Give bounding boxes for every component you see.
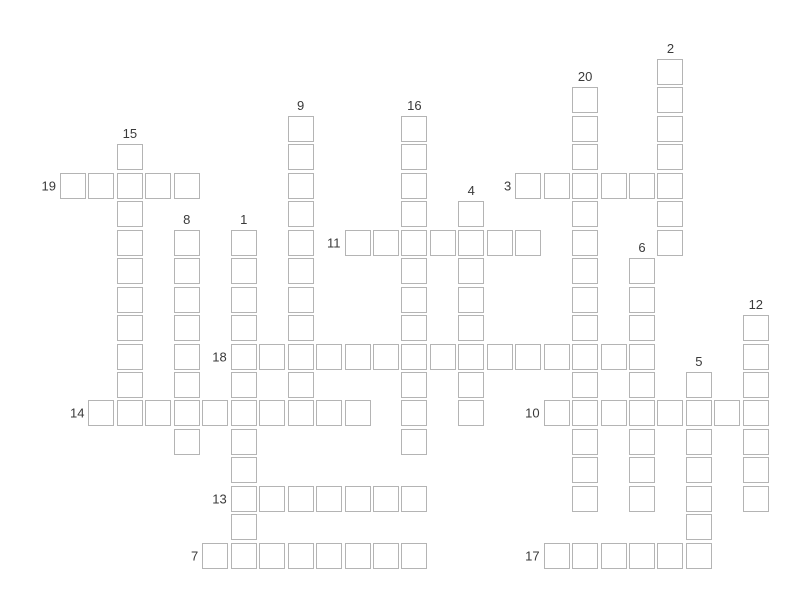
clue-number-14-across: 14 [70, 407, 84, 420]
crossword-cell[interactable] [117, 372, 143, 398]
crossword-cell[interactable] [345, 344, 371, 370]
crossword-cell[interactable] [572, 457, 598, 483]
crossword-cell[interactable] [458, 315, 484, 341]
clue-number-18-across: 18 [212, 350, 226, 363]
crossword-cell[interactable] [401, 400, 427, 426]
crossword-cell[interactable] [572, 543, 598, 569]
crossword-cell[interactable] [174, 258, 200, 284]
crossword-cell[interactable] [117, 344, 143, 370]
crossword-cell[interactable] [288, 230, 314, 256]
crossword-cell[interactable] [117, 201, 143, 227]
crossword-cell[interactable] [231, 486, 257, 512]
crossword-cell[interactable] [288, 258, 314, 284]
crossword-cell[interactable] [174, 230, 200, 256]
clue-number-11-across: 11 [327, 236, 341, 249]
crossword-cell[interactable] [117, 315, 143, 341]
crossword-cell[interactable] [572, 400, 598, 426]
clue-number-19-across: 19 [42, 179, 56, 192]
crossword-cell[interactable] [430, 344, 456, 370]
crossword-cell[interactable] [401, 201, 427, 227]
crossword-cell[interactable] [259, 486, 285, 512]
crossword-cell[interactable] [686, 429, 712, 455]
crossword-cell[interactable] [629, 173, 655, 199]
crossword-cell[interactable] [657, 116, 683, 142]
crossword-cell[interactable] [487, 230, 513, 256]
crossword-cell[interactable] [743, 315, 769, 341]
crossword-cell[interactable] [288, 116, 314, 142]
crossword-cell[interactable] [657, 59, 683, 85]
crossword-cell[interactable] [686, 486, 712, 512]
crossword-cell[interactable] [174, 400, 200, 426]
crossword-cell[interactable] [174, 429, 200, 455]
crossword-cell[interactable] [743, 457, 769, 483]
crossword-cell[interactable] [288, 344, 314, 370]
crossword-cell[interactable] [544, 344, 570, 370]
crossword-cell[interactable] [401, 173, 427, 199]
crossword-cell[interactable] [572, 144, 598, 170]
crossword-cell[interactable] [686, 457, 712, 483]
clue-number-16-down: 16 [407, 99, 421, 112]
crossword-cell[interactable] [373, 486, 399, 512]
crossword-cell[interactable] [572, 429, 598, 455]
crossword-cell[interactable] [743, 400, 769, 426]
crossword-cell[interactable] [174, 344, 200, 370]
crossword-cell[interactable] [629, 315, 655, 341]
crossword-cell[interactable] [316, 344, 342, 370]
crossword-cell[interactable] [629, 344, 655, 370]
crossword-cell[interactable] [629, 400, 655, 426]
crossword-cell[interactable] [231, 400, 257, 426]
crossword-cell[interactable] [714, 400, 740, 426]
crossword-cell[interactable] [117, 400, 143, 426]
crossword-cell[interactable] [231, 514, 257, 540]
crossword-cell[interactable] [60, 173, 86, 199]
crossword-cell[interactable] [345, 543, 371, 569]
crossword-cell[interactable] [231, 543, 257, 569]
crossword-cell[interactable] [288, 486, 314, 512]
clue-number-12-down: 12 [749, 298, 763, 311]
crossword-cell[interactable] [657, 87, 683, 113]
crossword-cell[interactable] [373, 230, 399, 256]
crossword-cell[interactable] [345, 486, 371, 512]
crossword-cell[interactable] [572, 287, 598, 313]
crossword-cell[interactable] [231, 230, 257, 256]
crossword-cell[interactable] [686, 514, 712, 540]
clue-number-10-across: 10 [525, 407, 539, 420]
crossword-cell[interactable] [601, 344, 627, 370]
crossword-cell[interactable] [288, 173, 314, 199]
crossword-grid: 1234567891011121314151617181920 [0, 0, 800, 600]
crossword-cell[interactable] [572, 230, 598, 256]
crossword-cell[interactable] [515, 173, 541, 199]
crossword-cell[interactable] [117, 144, 143, 170]
crossword-cell[interactable] [202, 543, 228, 569]
crossword-cell[interactable] [401, 287, 427, 313]
clue-number-3-across: 3 [504, 179, 511, 192]
crossword-cell[interactable] [231, 372, 257, 398]
crossword-cell[interactable] [316, 486, 342, 512]
crossword-cell[interactable] [487, 344, 513, 370]
crossword-cell[interactable] [316, 543, 342, 569]
crossword-cell[interactable] [629, 486, 655, 512]
crossword-cell[interactable] [629, 457, 655, 483]
crossword-cell[interactable] [345, 400, 371, 426]
crossword-cell[interactable] [601, 400, 627, 426]
crossword-cell[interactable] [572, 258, 598, 284]
crossword-cell[interactable] [174, 287, 200, 313]
crossword-cell[interactable] [629, 372, 655, 398]
crossword-cell[interactable] [686, 543, 712, 569]
crossword-cell[interactable] [288, 144, 314, 170]
crossword-cell[interactable] [401, 486, 427, 512]
crossword-cell[interactable] [174, 173, 200, 199]
crossword-cell[interactable] [231, 344, 257, 370]
clue-number-7-across: 7 [191, 549, 198, 562]
crossword-cell[interactable] [259, 543, 285, 569]
crossword-cell[interactable] [458, 287, 484, 313]
clue-number-17-across: 17 [525, 549, 539, 562]
crossword-cell[interactable] [117, 230, 143, 256]
crossword-cell[interactable] [629, 258, 655, 284]
crossword-cell[interactable] [629, 543, 655, 569]
crossword-cell[interactable] [458, 201, 484, 227]
crossword-cell[interactable] [657, 230, 683, 256]
crossword-cell[interactable] [316, 400, 342, 426]
crossword-cell[interactable] [231, 457, 257, 483]
crossword-cell[interactable] [231, 315, 257, 341]
crossword-cell[interactable] [686, 372, 712, 398]
crossword-cell[interactable] [572, 344, 598, 370]
crossword-cell[interactable] [288, 287, 314, 313]
clue-number-8-down: 8 [183, 213, 190, 226]
crossword-cell[interactable] [345, 230, 371, 256]
crossword-cell[interactable] [231, 287, 257, 313]
clue-number-15-down: 15 [123, 127, 137, 140]
crossword-cell[interactable] [401, 315, 427, 341]
crossword-cell[interactable] [145, 173, 171, 199]
crossword-cell[interactable] [458, 400, 484, 426]
crossword-cell[interactable] [572, 201, 598, 227]
crossword-cell[interactable] [117, 287, 143, 313]
crossword-cell[interactable] [657, 543, 683, 569]
crossword-cell[interactable] [174, 372, 200, 398]
crossword-cell[interactable] [657, 400, 683, 426]
crossword-cell[interactable] [401, 258, 427, 284]
clue-number-5-down: 5 [695, 355, 702, 368]
crossword-cell[interactable] [743, 372, 769, 398]
clue-number-6-down: 6 [638, 241, 645, 254]
crossword-cell[interactable] [401, 116, 427, 142]
crossword-cell[interactable] [601, 173, 627, 199]
crossword-cell[interactable] [458, 258, 484, 284]
crossword-cell[interactable] [544, 400, 570, 426]
crossword-cell[interactable] [686, 400, 712, 426]
crossword-cell[interactable] [259, 344, 285, 370]
crossword-cell[interactable] [601, 543, 627, 569]
crossword-cell[interactable] [259, 400, 285, 426]
crossword-cell[interactable] [629, 287, 655, 313]
crossword-cell[interactable] [572, 116, 598, 142]
clue-number-13-across: 13 [212, 492, 226, 505]
clue-number-20-down: 20 [578, 70, 592, 83]
crossword-cell[interactable] [401, 144, 427, 170]
crossword-cell[interactable] [572, 315, 598, 341]
crossword-cell[interactable] [231, 258, 257, 284]
crossword-cell[interactable] [458, 230, 484, 256]
crossword-cell[interactable] [743, 486, 769, 512]
crossword-cell[interactable] [88, 400, 114, 426]
crossword-cell[interactable] [288, 543, 314, 569]
crossword-cell[interactable] [288, 400, 314, 426]
crossword-cell[interactable] [117, 258, 143, 284]
crossword-cell[interactable] [202, 400, 228, 426]
crossword-cell[interactable] [743, 344, 769, 370]
crossword-cell[interactable] [515, 344, 541, 370]
crossword-cell[interactable] [288, 201, 314, 227]
crossword-cell[interactable] [657, 173, 683, 199]
crossword-cell[interactable] [572, 486, 598, 512]
crossword-cell[interactable] [544, 173, 570, 199]
clue-number-2-down: 2 [667, 42, 674, 55]
crossword-cell[interactable] [572, 372, 598, 398]
clue-number-4-down: 4 [468, 184, 475, 197]
clue-number-9-down: 9 [297, 99, 304, 112]
crossword-cell[interactable] [401, 344, 427, 370]
crossword-cell[interactable] [458, 344, 484, 370]
crossword-cell[interactable] [458, 372, 484, 398]
crossword-cell[interactable] [174, 315, 200, 341]
crossword-cell[interactable] [145, 400, 171, 426]
crossword-cell[interactable] [743, 429, 769, 455]
crossword-cell[interactable] [373, 543, 399, 569]
crossword-cell[interactable] [401, 230, 427, 256]
crossword-cell[interactable] [401, 429, 427, 455]
crossword-cell[interactable] [544, 543, 570, 569]
crossword-cell[interactable] [657, 144, 683, 170]
crossword-cell[interactable] [88, 173, 114, 199]
crossword-cell[interactable] [231, 429, 257, 455]
crossword-cell[interactable] [288, 372, 314, 398]
clue-number-1-down: 1 [240, 213, 247, 226]
crossword-cell[interactable] [373, 344, 399, 370]
crossword-cell[interactable] [572, 87, 598, 113]
crossword-cell[interactable] [515, 230, 541, 256]
crossword-cell[interactable] [288, 315, 314, 341]
crossword-cell[interactable] [657, 201, 683, 227]
crossword-cell[interactable] [572, 173, 598, 199]
crossword-cell[interactable] [117, 173, 143, 199]
crossword-cell[interactable] [629, 429, 655, 455]
crossword-cell[interactable] [430, 230, 456, 256]
crossword-cell[interactable] [401, 543, 427, 569]
crossword-cell[interactable] [401, 372, 427, 398]
